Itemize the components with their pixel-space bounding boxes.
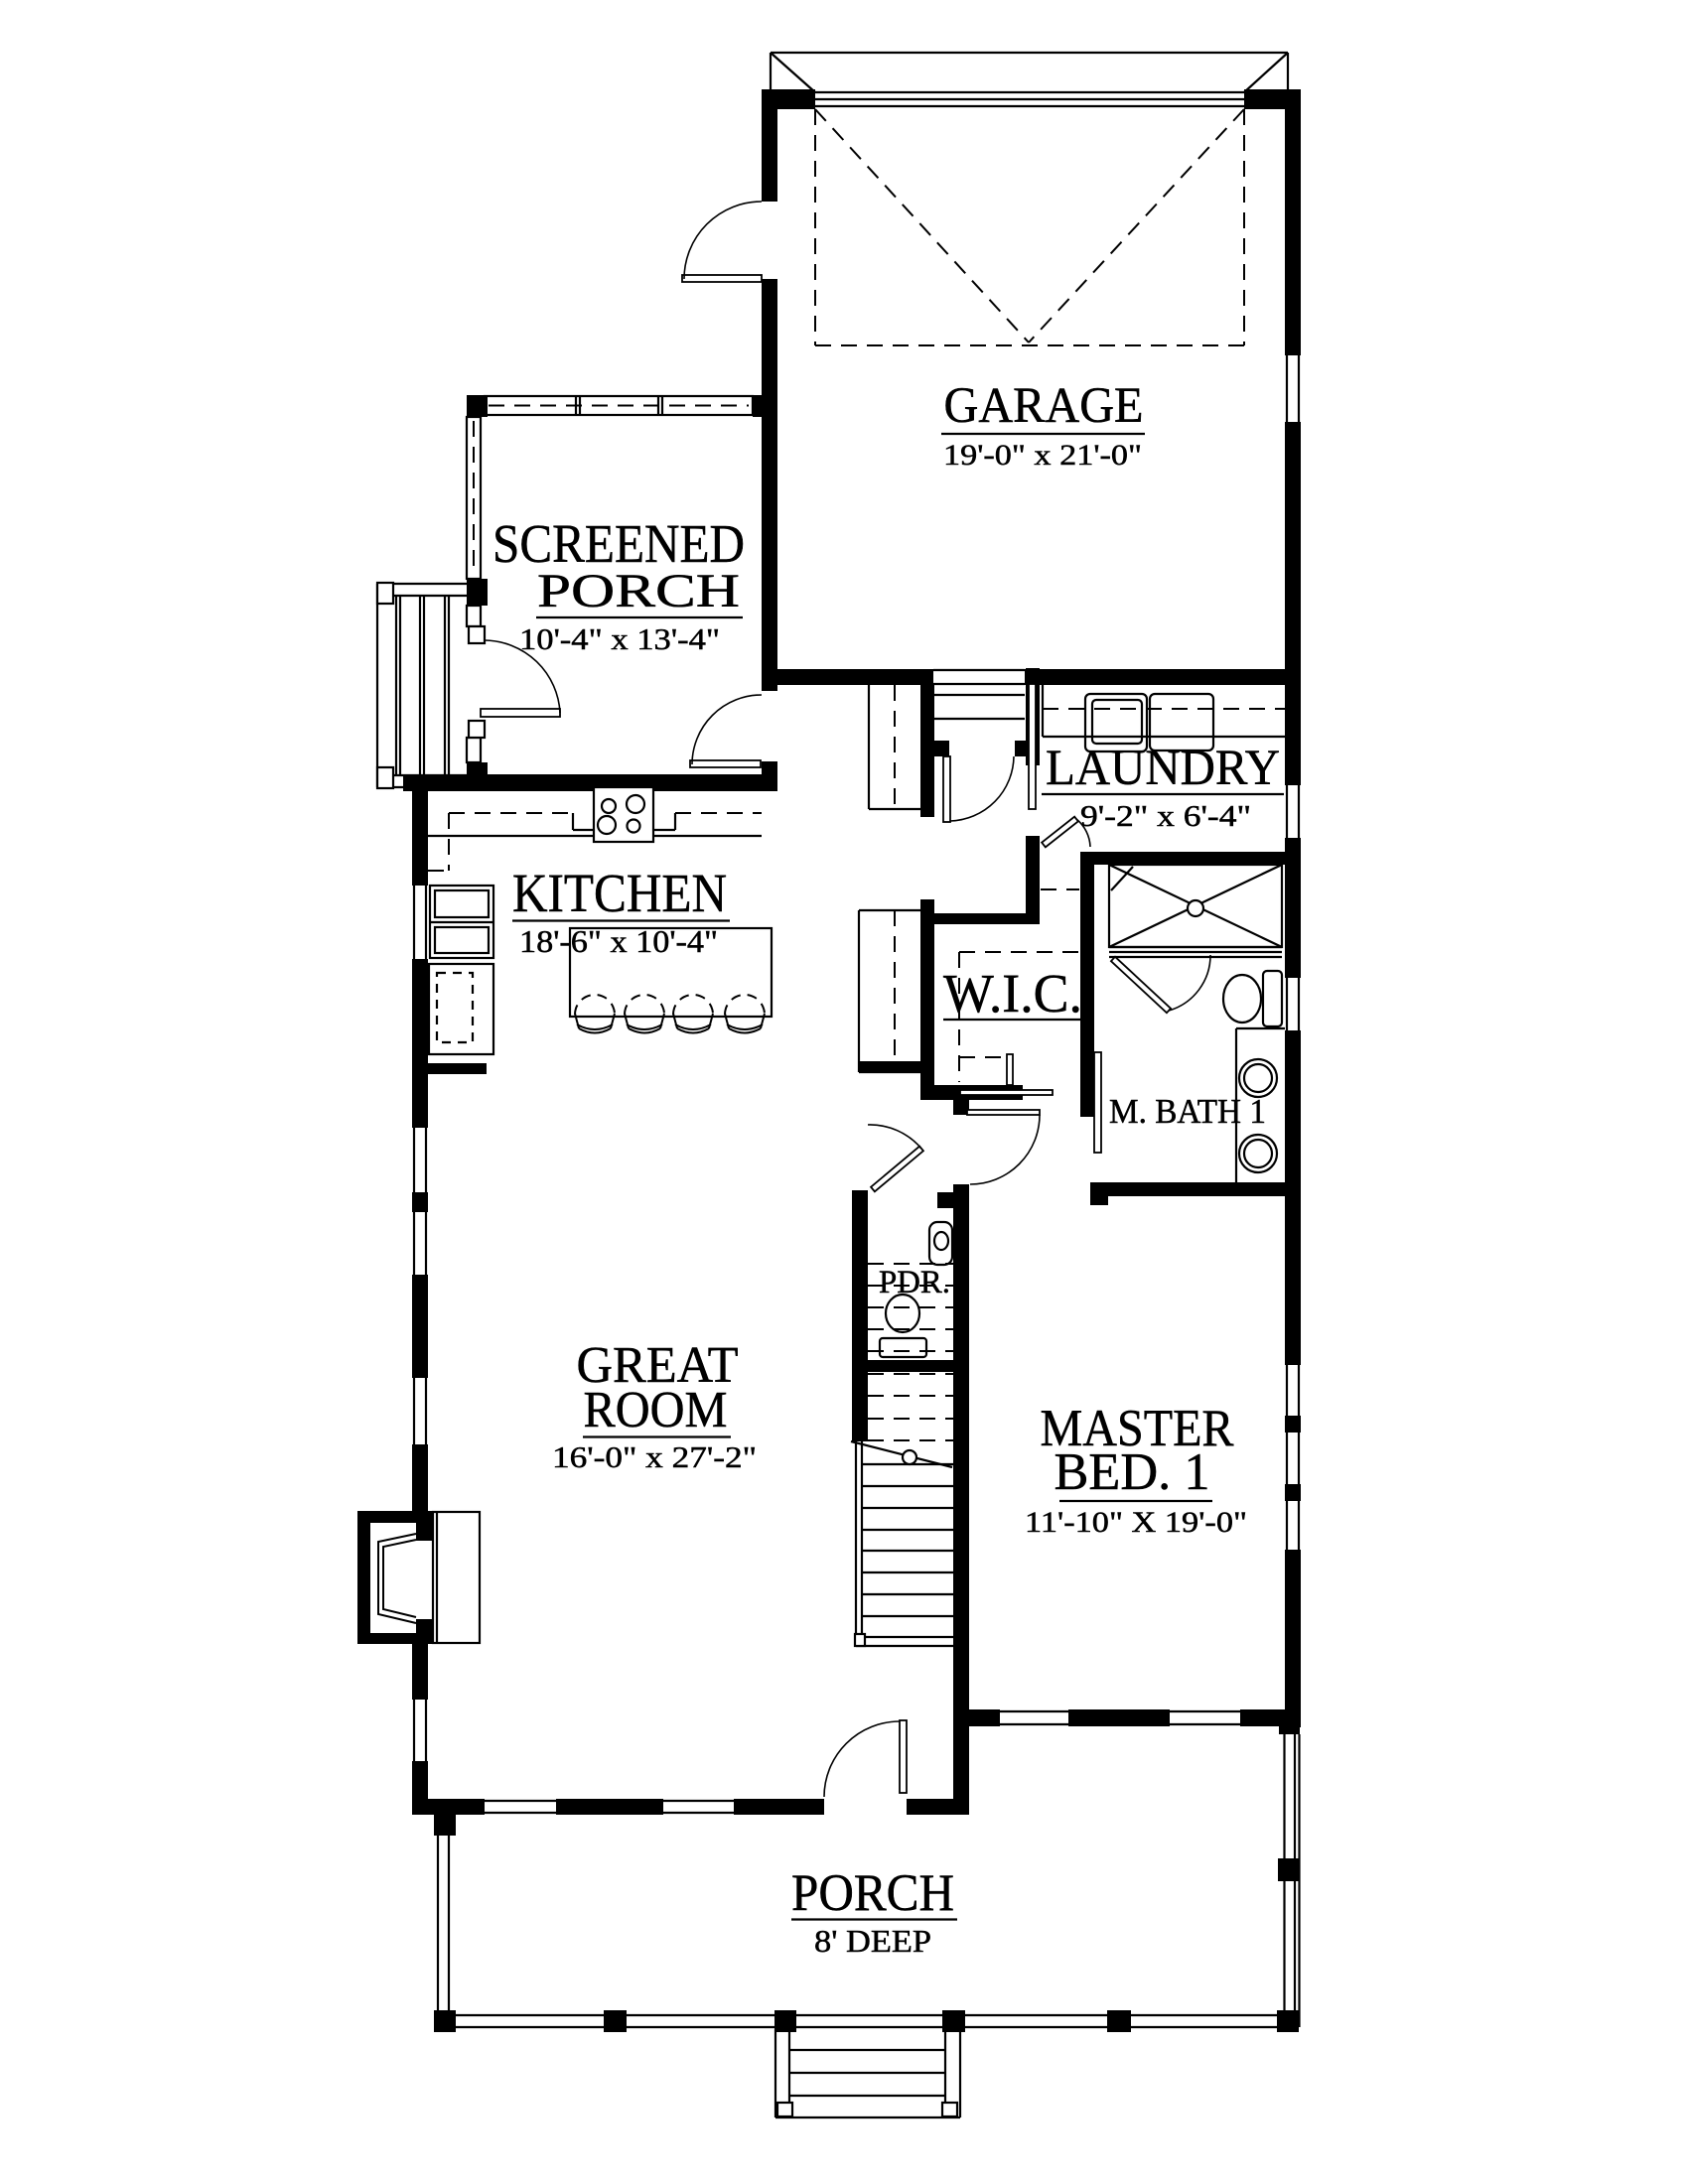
- svg-text:8' DEEP: 8' DEEP: [814, 1923, 931, 1959]
- svg-text:9'-2" x 6'-4": 9'-2" x 6'-4": [1080, 798, 1251, 833]
- svg-text:PDR.: PDR.: [879, 1265, 950, 1300]
- svg-text:W.I.C.: W.I.C.: [943, 963, 1082, 1024]
- svg-text:10'-4" x 13'-4": 10'-4" x 13'-4": [519, 621, 720, 656]
- svg-text:PORCH: PORCH: [791, 1864, 954, 1922]
- svg-text:PORCH: PORCH: [537, 565, 740, 617]
- svg-text:BED. 1: BED. 1: [1055, 1443, 1210, 1501]
- svg-text:GARAGE: GARAGE: [944, 378, 1144, 434]
- svg-text:KITCHEN: KITCHEN: [512, 863, 727, 923]
- svg-text:LAUNDRY: LAUNDRY: [1046, 741, 1280, 796]
- svg-text:16'-0" x 27'-2": 16'-0" x 27'-2": [552, 1439, 757, 1474]
- svg-text:18'-6" x 10'-4": 18'-6" x 10'-4": [519, 923, 718, 959]
- svg-text:11'-10" X 19'-0": 11'-10" X 19'-0": [1025, 1506, 1247, 1539]
- svg-text:M. BATH 1: M. BATH 1: [1109, 1092, 1266, 1131]
- svg-text:ROOM: ROOM: [584, 1382, 728, 1438]
- svg-text:19'-0" x 21'-0": 19'-0" x 21'-0": [943, 439, 1142, 472]
